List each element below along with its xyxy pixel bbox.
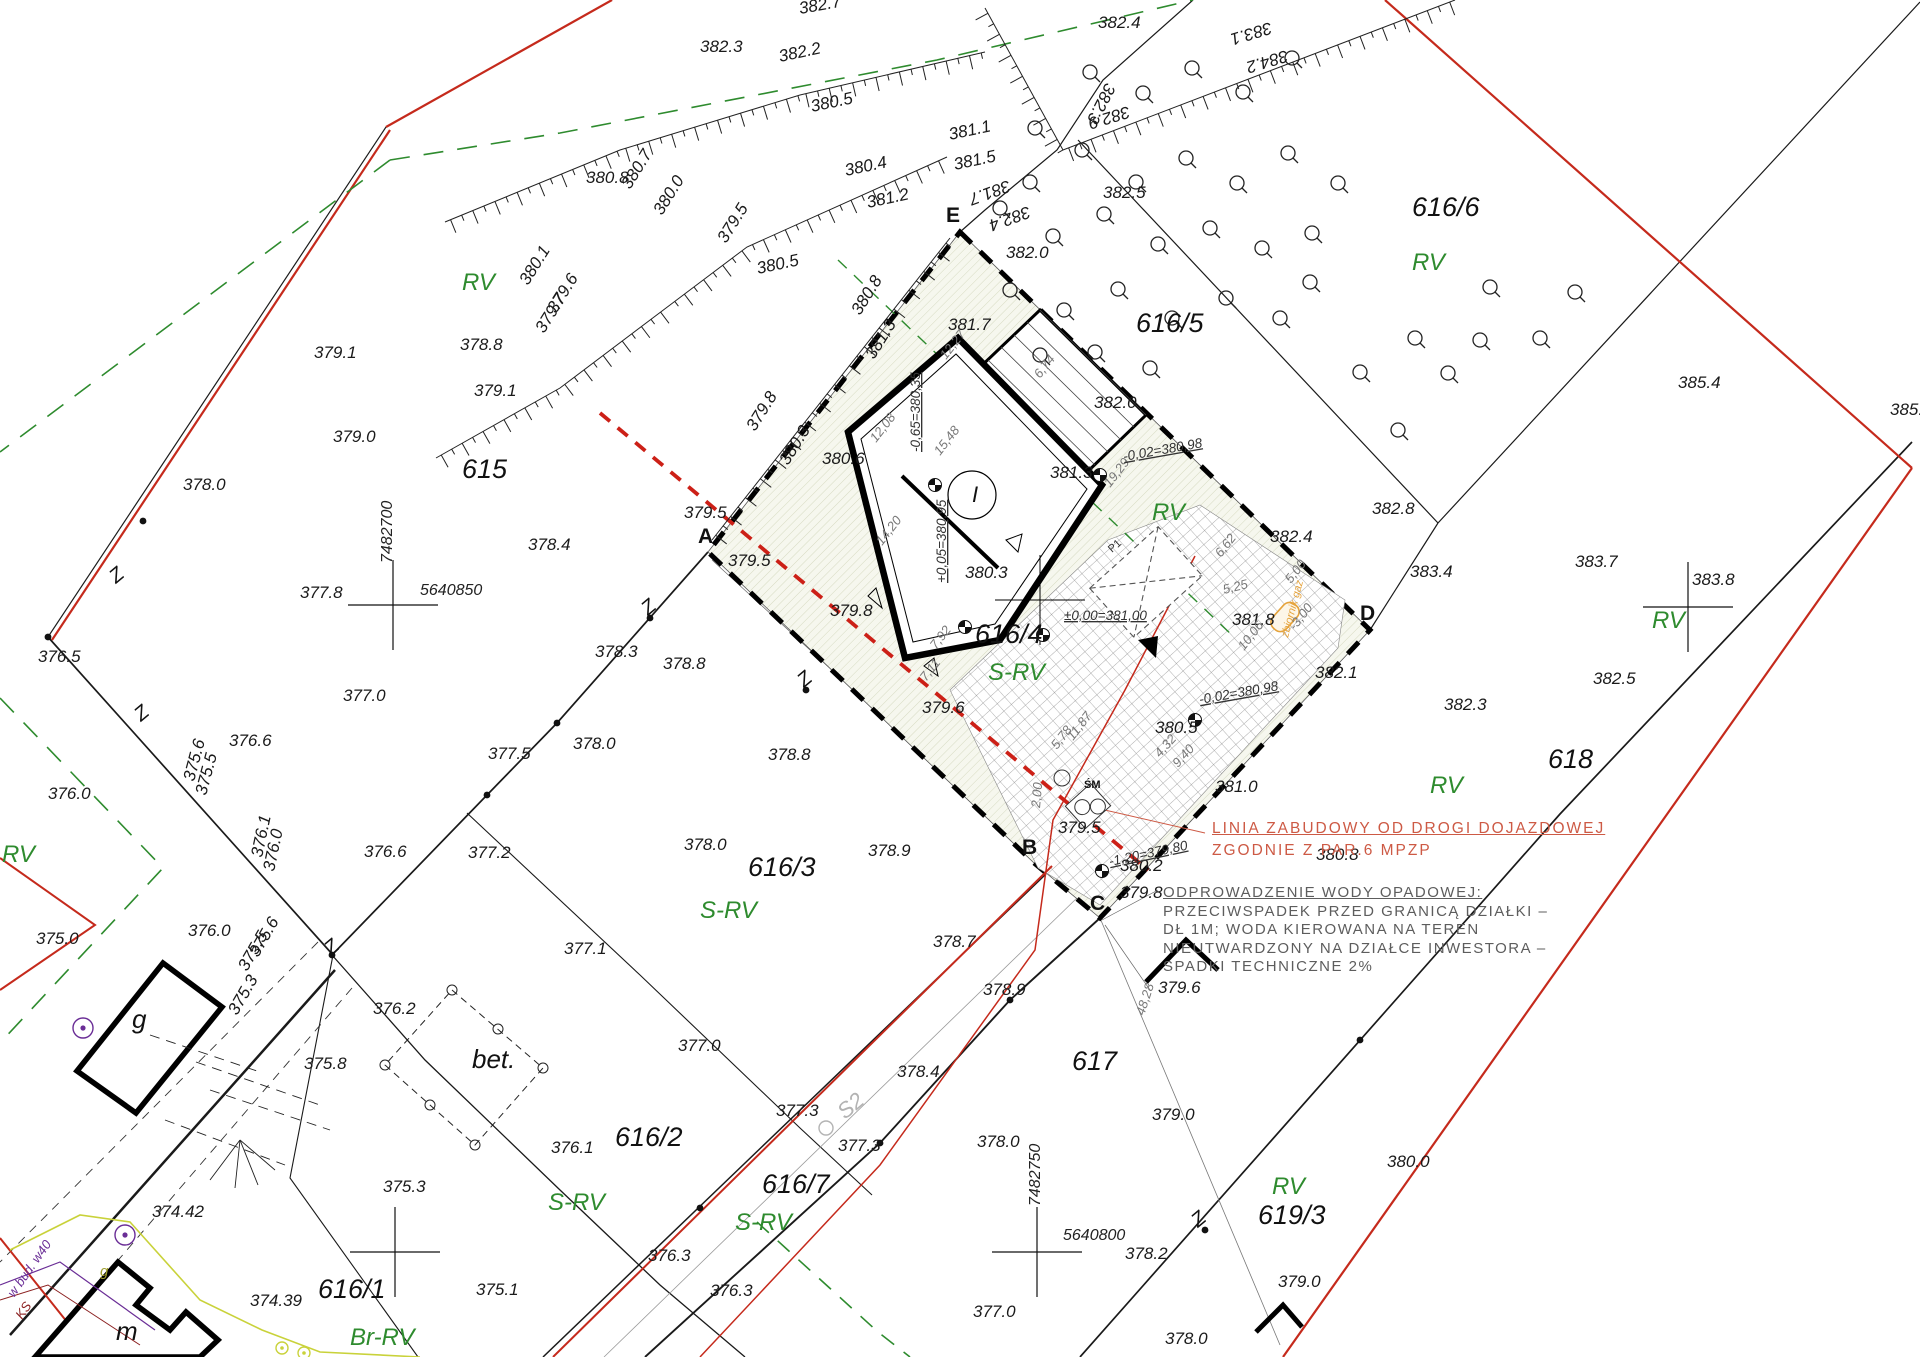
elevation-label: 376.3 [710,1281,753,1300]
elevation-label: 374.42 [152,1202,205,1221]
well-icon [73,1018,93,1038]
elevation-label: 377.0 [343,686,386,705]
elevation-label: 376.6 [229,731,272,750]
tree-icon [1097,207,1114,224]
elevation-label: 378.9 [868,841,911,860]
fence-mark: Z [636,595,661,621]
elevation-label: 378.9 [983,980,1026,999]
elevation-label: 380.3 [965,563,1008,582]
scarp-band [445,52,985,233]
elevation-label: 378.4 [528,535,571,554]
parcel-number-label: 616/3 [748,852,816,882]
elevation-label: 379.5 [684,503,727,522]
elevation-label: 381.5 [952,146,998,174]
elevation-label: 382.0 [1094,393,1137,412]
elevation-label: 377.3 [838,1136,881,1155]
site-plan-stage: 382.7382.3382.2380.5382.4383.1384.2382.3… [0,0,1920,1357]
elevation-label: 380.8 [847,272,886,319]
landuse-label: RV [2,841,37,868]
elevation-label: 382.1 [1315,663,1358,682]
elevation-label: 379.6 [1158,978,1201,997]
landuse-label: RV [1652,607,1687,634]
tree-icon [1136,86,1153,103]
landuse-label: Br-RV [350,1324,416,1351]
cadastral-site-plan: 382.7382.3382.2380.5382.4383.1384.2382.3… [0,0,1920,1357]
landuse-label: S-RV [988,659,1047,686]
elevation-label: 376.0 [188,921,231,940]
grid-coordinate-label: 5640850 [420,582,482,599]
elevation-label: 378.2 [1125,1244,1168,1263]
fence-mark: Z [792,667,817,693]
drainage-line: PRZECIWSPADEK PRZED GRANICĄ DZIAŁKI – [1163,903,1548,922]
parcel-number-label: 619/3 [1258,1200,1326,1230]
elevation-label: 378.8 [460,335,503,354]
elevation-label: 377.3 [776,1101,819,1120]
elevation-label: 383.1 [1228,18,1274,49]
parcel-number-label: 617 [1072,1046,1118,1076]
grid-cross-icon [992,1207,1082,1297]
gas-point-icon [276,1342,288,1354]
building-m-label: m [116,1316,138,1346]
elevation-label: 378.4 [897,1062,940,1081]
elevation-label: 383.7 [1575,552,1618,571]
elevation-label: 378.0 [573,734,616,753]
boundary-point [554,720,561,727]
elevation-label: 379.1 [314,343,357,362]
elevation-label: 385.7 [1890,400,1920,419]
elevation-label: 378.7 [933,932,976,951]
elevation-label: 383.4 [1410,562,1453,581]
boundary-point [1357,1037,1364,1044]
drainage-line: NIEUTWARDZONY NA DZIAŁCE INWESTORA – [1163,940,1548,959]
grid-coordinate-label: 7482750 [1027,1144,1044,1206]
parcel-number-label: 616/6 [1412,192,1481,222]
building-number-label: I [972,482,978,507]
elevation-label: 377.2 [468,843,511,862]
grid-cross-icon [348,560,438,650]
tree-icon [1143,361,1160,378]
elevation-label: 375.8 [304,1054,347,1073]
level-reference-label: +0,05=380,95 [934,499,949,583]
drainage-line: DŁ 1M; WODA KIEROWANA NA TEREN [1163,921,1548,940]
landuse-label: RV [1430,772,1465,799]
elevation-label: 383.8 [1692,570,1735,589]
elevation-label: 375.0 [36,929,79,948]
boundary-point [45,634,52,641]
well-icon [115,1225,135,1245]
elevation-label: 382.2 [777,38,823,66]
elevation-label: 382.3 [700,37,743,56]
elevation-label: 381.2 [865,184,911,212]
grid-coordinate-label: 5640800 [1063,1227,1125,1244]
level-marker-icon [929,479,942,492]
elevation-label: 382.4 [1270,527,1313,546]
elevation-label: 378.8 [768,745,811,764]
plot-corner-label: E [946,204,960,227]
elevation-label: 378.0 [684,835,727,854]
fence-mark: Z [319,935,344,961]
dimension-label: 2,00 [1028,781,1045,809]
elevation-label: 382.5 [1593,669,1636,688]
boundary-point [484,792,491,799]
utility-note-label: w bud. w40 [4,1237,54,1300]
level-reference-label: ±0,00=381,00 [1064,608,1147,623]
tree-icon [1185,61,1202,78]
elevation-label: 379.8 [742,388,781,435]
elevation-label: 378.0 [977,1132,1020,1151]
parcel-number-label: 616/5 [1136,308,1205,338]
elevation-label: 379.8 [830,601,873,620]
elevation-label: 382.5 [1103,183,1146,202]
elevation-label: 381.3 [1050,463,1093,482]
elevation-label: 376.6 [364,842,407,861]
elevation-label: 380.6 [822,449,865,468]
elevation-label: 379.6 [922,698,965,717]
elevation-label: 382.4 [1098,13,1141,32]
elevation-label: 375.3 [383,1177,426,1196]
elevation-label: 382.7 [797,0,843,18]
fence-mark: Z [104,563,129,589]
elevation-label: 385.4 [1678,373,1721,392]
tree-icon [1353,365,1370,382]
road-symbol-circle [819,1121,833,1135]
building-line-annotation-line1: LINIA ZABUDOWY OD DROGI DOJAZDOWEJ [1212,818,1605,840]
tree-icon [1483,280,1500,297]
fence-mark: Z [129,701,154,727]
elevation-label: 384.2 [1244,46,1291,77]
building-line-annotation-line2: ZGODNIE Z PAR.6 MPZP [1212,840,1605,862]
elevation-label: 379.8 [1120,883,1163,902]
parcel-number-label: 616/4 [975,619,1043,649]
drainage-annotation: ODPROWADZENIE WODY OPADOWEJ: PRZECIWSPAD… [1163,884,1548,977]
parcel-number-label: 618 [1548,744,1593,774]
tree-icon [1023,175,1040,192]
landuse-label: RV [1152,499,1187,526]
elevation-label: 381.1 [947,116,993,143]
elevation-label: 380.1 [515,242,554,288]
tree-icon [1255,241,1272,258]
tree-icon [1568,285,1585,302]
elevation-label: 380.5 [1155,718,1198,737]
tree-icon [1179,151,1196,168]
tree-icon [1441,366,1458,383]
elevation-label: 376.0 [48,784,91,803]
boundary-point [140,518,147,525]
tree-icon [1057,303,1074,320]
elevation-label: 377.5 [488,744,531,763]
drainage-line: SPADKI TECHNICZNE 2% [1163,958,1548,977]
landuse-label: S-RV [548,1189,607,1216]
building-line-annotation: LINIA ZABUDOWY OD DROGI DOJAZDOWEJ ZGODN… [1212,818,1605,862]
elevation-label: 380.4 [843,152,889,179]
plot-corner-label: A [698,525,713,548]
tree-icon [1331,176,1348,193]
plot-corner-label: B [1022,836,1037,859]
elevation-label: 378.8 [663,654,706,673]
tree-icon [1111,282,1128,299]
elevation-label: 374.39 [250,1291,303,1310]
elevation-label: 379.0 [1278,1272,1321,1291]
tree-icon [1305,226,1322,243]
elevation-label: 375.3 [224,971,262,1018]
elevation-label: 382.3 [1444,695,1487,714]
dimension-label: 48,28 [1133,981,1158,1017]
gas-point-icon [298,1347,310,1357]
parcel-number-label: 616/1 [318,1274,386,1304]
elevation-label: 379.0 [1152,1105,1195,1124]
elevation-label: 376.2 [373,999,416,1018]
elevation-label: 379.0 [333,427,376,446]
landuse-label: RV [462,269,497,296]
elevation-label: 375.1 [476,1280,519,1299]
slope-arrow-fan [210,1140,275,1188]
elevation-label: 381.0 [1215,777,1258,796]
elevation-label: 378.0 [1165,1329,1208,1348]
landuse-label: S-RV [700,897,759,924]
elevation-label: 379.5 [1058,818,1101,837]
tree-icon [1408,331,1425,348]
elevation-label: 379.5 [728,551,771,570]
boundary-point [697,1205,704,1212]
parcel-number-label: 616/2 [615,1122,683,1152]
outbuilding-g-label: g [132,1004,147,1034]
concrete-area-label: bet. [472,1044,515,1074]
scarp-band [976,0,1455,161]
tree-icon [1303,275,1320,292]
tree-icon [1083,65,1100,82]
plot-corner-label: D [1360,602,1375,625]
level-reference-label: -0,65=380,35 [908,372,923,452]
gas-line-label: g [100,1263,109,1280]
elevation-label: 379.1 [474,381,517,400]
level-marker-icon [1096,865,1109,878]
elevation-label: 376.3 [648,1246,691,1265]
drainage-line: ODPROWADZENIE WODY OPADOWEJ: [1163,884,1548,903]
grid-coordinate-label: 7482700 [379,501,396,563]
tree-icon [1391,423,1408,440]
elevation-label: 376.1 [551,1138,594,1157]
elevation-label: 378.3 [595,642,638,661]
elevation-label: 377.0 [678,1036,721,1055]
road-symbol-label: S2 [832,1087,869,1123]
tree-icon [1281,146,1298,163]
level-marker-icon [959,621,972,634]
elevation-label: 377.1 [564,939,607,958]
plot-corner-label: C [1090,892,1105,915]
elevation-label: 382.8 [1372,499,1415,518]
sewer-label: KS [12,1299,34,1322]
elevation-label: 377.0 [973,1302,1016,1321]
tree-icon [1473,333,1490,350]
waste-bin-label: ŚM [1084,778,1101,791]
elevation-label: 378.0 [183,475,226,494]
landuse-label: RV [1412,249,1447,276]
parcel-number-label: 615 [462,454,508,484]
elevation-label: 379.5 [713,200,752,247]
elevation-label: 380.5 [809,88,855,116]
tree-icon [1046,229,1063,246]
elevation-label: 377.8 [300,583,343,602]
elevation-label: 380.0 [649,172,688,219]
elevation-label: 376.5 [38,647,81,666]
elevation-label: 382.0 [1006,243,1049,262]
tree-icon [1533,331,1550,348]
tree-icon [1230,176,1247,193]
tree-icon [1203,221,1220,238]
tree-icon [1151,237,1168,254]
elevation-label: 380.5 [755,250,801,278]
tree-icon [1273,311,1290,328]
parcel-number-label: 616/7 [762,1169,831,1199]
landuse-label: RV [1272,1173,1307,1200]
elevation-label: 380.0 [1387,1152,1430,1171]
landuse-label: S-RV [735,1209,794,1236]
